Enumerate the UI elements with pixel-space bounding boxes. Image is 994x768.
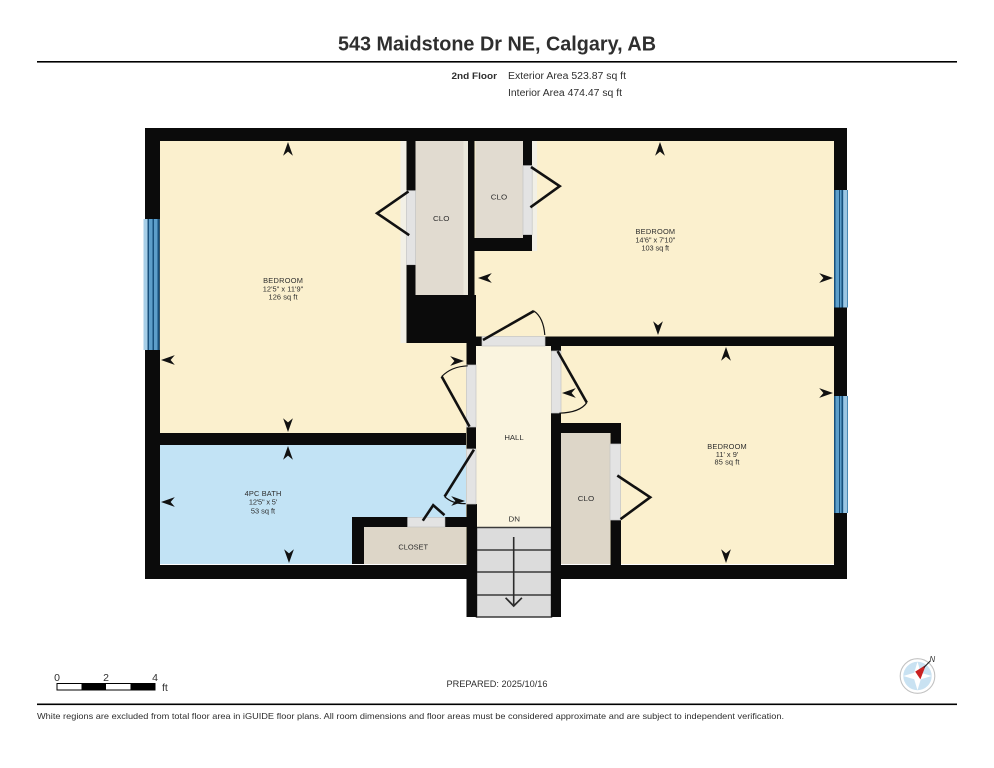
svg-text:CLOSET: CLOSET xyxy=(398,542,428,551)
svg-text:126 sq ft: 126 sq ft xyxy=(269,292,298,301)
svg-text:Exterior Area 523.87 sq ft: Exterior Area 523.87 sq ft xyxy=(508,71,626,82)
svg-text:2: 2 xyxy=(103,672,109,684)
svg-text:103 sq ft: 103 sq ft xyxy=(642,244,670,253)
svg-text:White regions are excluded fro: White regions are excluded from total fl… xyxy=(37,711,784,721)
svg-text:N: N xyxy=(930,655,936,664)
svg-text:Interior Area 474.47 sq ft: Interior Area 474.47 sq ft xyxy=(508,88,622,99)
svg-text:CLO: CLO xyxy=(578,494,595,503)
svg-text:85 sq ft: 85 sq ft xyxy=(715,458,740,467)
svg-text:HALL: HALL xyxy=(504,433,523,442)
svg-text:2nd Floor: 2nd Floor xyxy=(452,71,498,82)
svg-text:CLO: CLO xyxy=(433,214,450,223)
svg-text:543 Maidstone Dr NE, Calgary,: 543 Maidstone Dr NE, Calgary, AB xyxy=(338,34,656,56)
svg-text:ft: ft xyxy=(162,682,168,694)
svg-text:53 sq ft: 53 sq ft xyxy=(251,506,275,515)
svg-text:CLO: CLO xyxy=(491,192,508,201)
svg-text:0: 0 xyxy=(54,672,60,684)
svg-text:4: 4 xyxy=(152,672,158,684)
svg-text:DN: DN xyxy=(509,515,521,524)
svg-text:PREPARED: 2025/10/16: PREPARED: 2025/10/16 xyxy=(447,679,548,689)
